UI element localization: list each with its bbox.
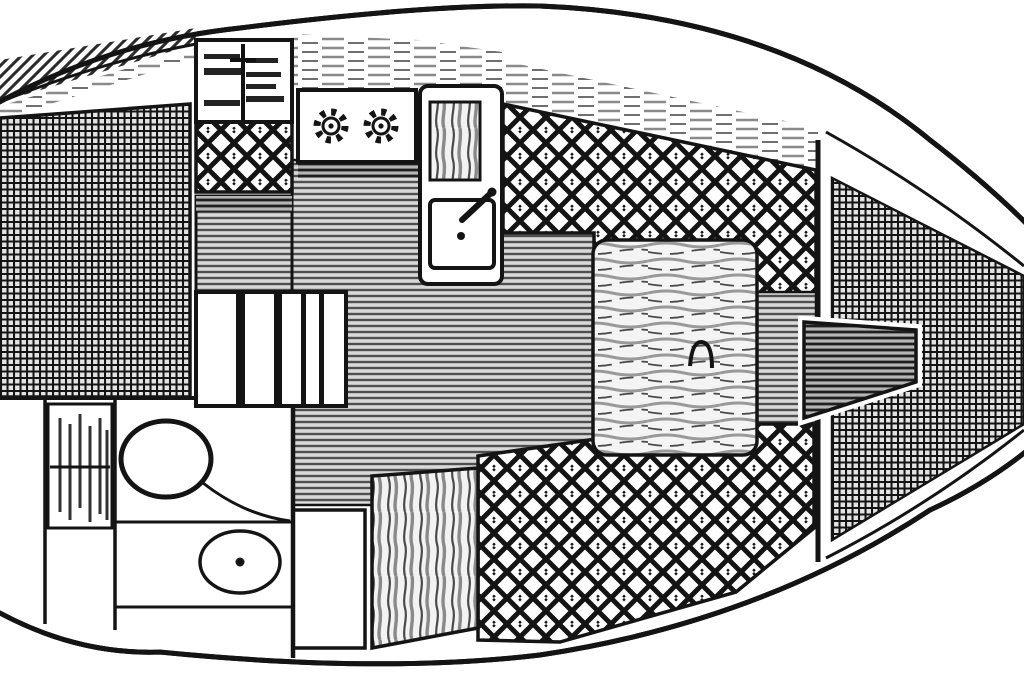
forward-diamond-locker (196, 122, 292, 192)
boat-floor-plan (0, 0, 1024, 680)
head-compartment (0, 398, 295, 658)
forward-shelf-locker (196, 40, 292, 122)
folding-table-steps (196, 292, 346, 406)
port-counter-forward (196, 196, 292, 292)
head-wash-basin (200, 531, 280, 593)
wet-locker-wood-panel (372, 468, 478, 648)
galley-sink-counter (420, 86, 502, 284)
v-berth-cushion (0, 104, 190, 397)
floor-plan-canvas (0, 0, 1024, 680)
nav-table-wood-top (593, 240, 757, 455)
head-louvered-locker (48, 404, 112, 528)
galley-stove-two-burners (298, 90, 420, 178)
cabin-sole-locker (293, 510, 365, 648)
